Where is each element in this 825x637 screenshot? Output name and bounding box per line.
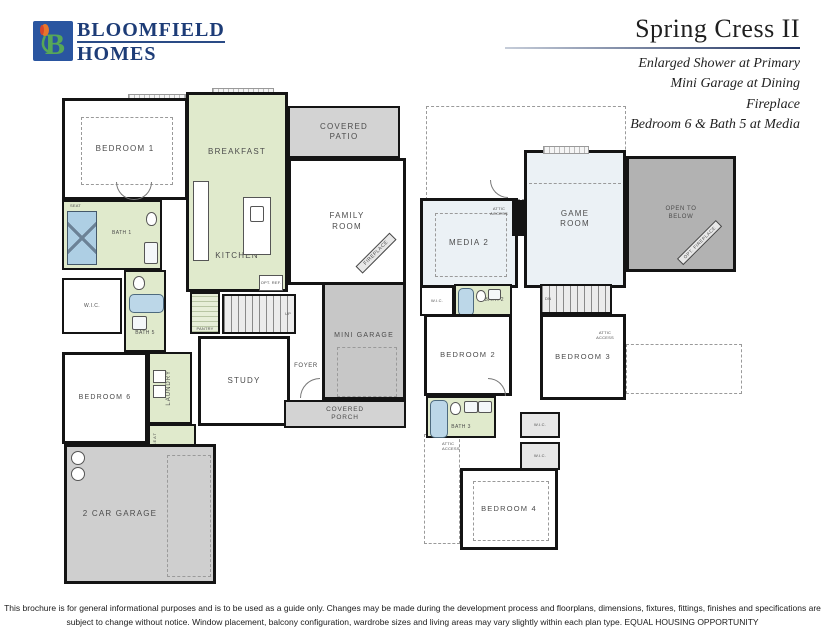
room-label: BATH 3 <box>451 424 471 431</box>
room-label: LAUNDRY <box>166 370 174 406</box>
room-label: STUDY <box>227 376 260 386</box>
toilet-icon <box>476 290 486 302</box>
attic-access-label: ATTIC ACCESS <box>593 331 617 341</box>
room-label: W.I.C. <box>84 303 100 310</box>
brand-line2: HOMES <box>77 44 225 64</box>
room-pantry: PANTRY <box>190 292 220 334</box>
room-label: FOYER <box>294 363 318 371</box>
disclaimer-line2: subject to change without notice. Window… <box>0 616 825 630</box>
room-label: W.I.C. <box>534 423 546 428</box>
stairs-label: DN <box>545 297 551 302</box>
room-label: W.I.C. <box>534 454 546 459</box>
plan-option-1: Enlarged Shower at Primary <box>505 54 800 74</box>
room-bath-2: BATH 2 <box>454 284 512 316</box>
room-label: FAMILY ROOM <box>319 211 375 232</box>
opt-ref-box: OPT. REF. <box>259 275 283 291</box>
room-wic-a: W.I.C. <box>520 412 560 438</box>
disclaimer: This brochure is for general information… <box>0 602 825 629</box>
room-game-room: GAME ROOM <box>524 150 626 288</box>
room-laundry: LAUNDRY <box>148 352 192 424</box>
stairs-label: UP <box>285 312 291 317</box>
tub-icon <box>129 294 164 313</box>
attic-access-label: ATTIC ACCESS <box>487 207 511 217</box>
room-bath-3: BATH 3 <box>426 396 496 438</box>
room-wic-b: W.I.C. <box>520 442 560 470</box>
vanity-icon <box>144 242 158 264</box>
room-bedroom-3: BEDROOM 3 ATTIC ACCESS <box>540 314 626 400</box>
room-bath-5: BATH 5 <box>124 270 166 352</box>
roof-outline <box>626 344 742 394</box>
toilet-icon <box>133 276 145 290</box>
room-wic-floor1: W.I.C. <box>62 278 122 334</box>
bed-outline <box>81 117 173 185</box>
bloomfield-logo-icon: B <box>33 21 73 61</box>
room-covered-porch: COVERED PORCH <box>284 400 406 428</box>
tub-icon <box>458 288 474 316</box>
room-label: 2 CAR GARAGE <box>83 509 157 519</box>
room-label: MINI GARAGE <box>334 331 394 340</box>
stairs-up: UP <box>222 294 296 334</box>
attic-access-label: ATTIC ACCESS <box>442 442 468 452</box>
brochure-page: B BLOOMFIELD HOMES Spring Cress II Enlar… <box>0 0 825 637</box>
cooktop-icon <box>250 206 264 222</box>
sink-icon <box>488 289 501 300</box>
ceiling-line <box>529 183 621 184</box>
room-kitchen-breakfast: BREAKFAST KITCHEN OPT. REF. <box>186 92 288 292</box>
room-mini-garage: MINI GARAGE <box>322 282 406 400</box>
title-rule <box>505 47 800 49</box>
plan-option-2: Mini Garage at Dining <box>505 74 800 94</box>
sink-icon <box>478 401 492 413</box>
dryer-icon <box>153 385 166 398</box>
room-label-breakfast: BREAKFAST <box>189 147 285 157</box>
disclaimer-line1: This brochure is for general information… <box>0 602 825 616</box>
room-label: PANTRY <box>196 327 213 332</box>
opt-ref-label: OPT. REF. <box>260 276 282 290</box>
room-label: BATH 1 <box>112 230 132 237</box>
shower-icon <box>67 211 97 265</box>
bed-outline <box>473 481 549 541</box>
room-label: GAME ROOM <box>550 209 600 230</box>
room-bedroom-4: BEDROOM 4 <box>460 468 558 550</box>
parking-outline <box>337 347 397 397</box>
tub-icon <box>430 400 448 438</box>
tray-ceiling-outline <box>435 213 507 277</box>
brand-name: BLOOMFIELD HOMES <box>77 20 225 64</box>
stairs-down: DN <box>540 284 612 314</box>
toilet-icon <box>146 212 157 226</box>
room-label: BEDROOM 2 <box>440 350 496 360</box>
room-study: STUDY <box>198 336 290 426</box>
room-label: OPEN TO BELOW <box>663 206 699 222</box>
water-heater-icon <box>71 467 85 481</box>
plan-title: Spring Cress II <box>505 14 800 44</box>
room-label: W.I.C. <box>431 299 443 304</box>
room-family-room: FAMILY ROOM <box>288 158 406 285</box>
kitchen-island <box>243 197 271 255</box>
toilet-icon <box>450 402 461 415</box>
room-bedroom-6: BEDROOM 6 <box>62 352 148 444</box>
room-label: BEDROOM 3 <box>555 352 611 362</box>
kitchen-counter <box>193 181 209 261</box>
room-2-car-garage: 2 CAR GARAGE <box>64 444 216 584</box>
water-heater-icon <box>71 451 85 465</box>
brand-line1: BLOOMFIELD <box>77 20 225 43</box>
bay-window <box>543 146 589 154</box>
washer-icon <box>153 370 166 383</box>
room-wic-bath2: W.I.C. <box>420 286 454 316</box>
room-bath-1: SEAT BATH 1 <box>62 200 162 270</box>
room-label: COVERED PATIO <box>313 122 375 143</box>
seat-label: SEAT <box>70 204 81 209</box>
sink-icon <box>464 401 478 413</box>
parking-outline <box>167 455 211 577</box>
sink-icon <box>132 316 147 330</box>
room-covered-patio: COVERED PATIO <box>288 106 400 158</box>
room-label: BEDROOM 6 <box>79 393 132 402</box>
wall-segment <box>512 200 526 236</box>
room-label: BATH 5 <box>135 330 155 337</box>
room-media-2: MEDIA 2 ATTIC ACCESS <box>420 198 518 288</box>
room-label: COVERED PORCH <box>315 406 375 423</box>
